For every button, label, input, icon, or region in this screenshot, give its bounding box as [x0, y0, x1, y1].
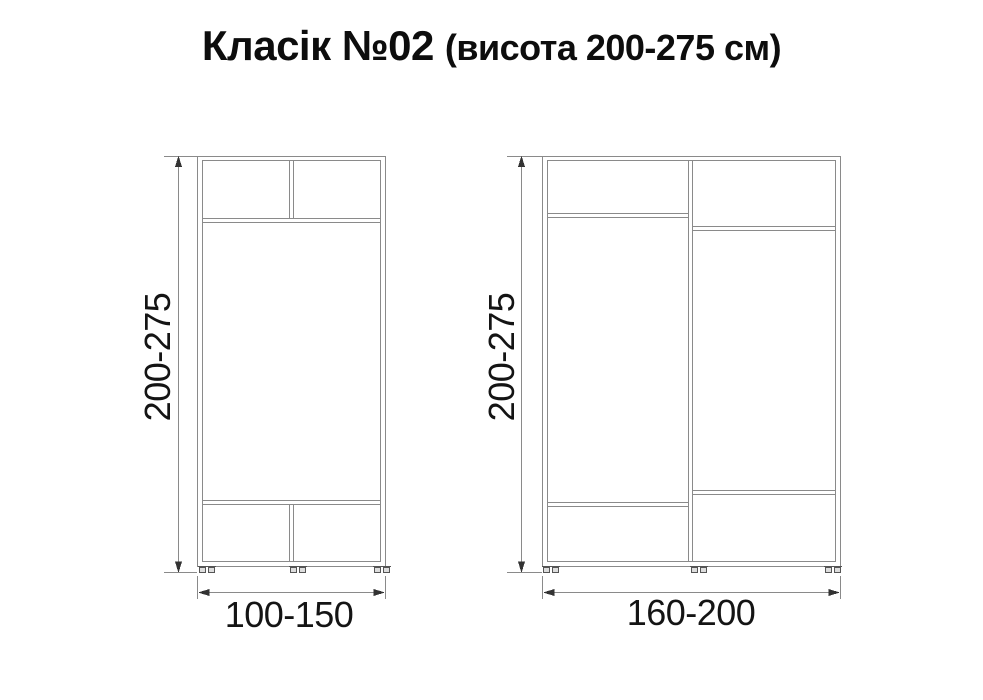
arrow-left-icon [543, 589, 555, 596]
arrow-up-icon [518, 156, 525, 168]
cabinet-foot [198, 567, 216, 573]
arrow-down-icon [518, 562, 525, 574]
wardrobe-dimension-diagram-page: Класік №02(висота 200-275 см) [0, 0, 983, 700]
left-cabinet-height-label: 200-275 [138, 297, 178, 417]
arrow-down-icon [175, 562, 182, 574]
left-cabinet-feet [198, 567, 391, 573]
cabinet-foot [690, 567, 708, 573]
left-cabinet-width-label: 100-150 [189, 595, 389, 635]
cabinet-foot [824, 567, 842, 573]
technical-drawing-area: 200-275 100-150 200-275 160-200 [0, 0, 983, 700]
arrow-right-icon [829, 589, 841, 596]
cabinet-foot [373, 567, 391, 573]
right-cabinet-width-label: 160-200 [591, 593, 791, 633]
right-cabinet-drawing [542, 157, 842, 573]
left-cabinet-drawing [198, 157, 392, 573]
right-cabinet-height-label: 200-275 [482, 297, 522, 417]
cabinet-foot [542, 567, 560, 573]
cabinet-foot [289, 567, 307, 573]
arrow-up-icon [175, 156, 182, 168]
right-cabinet-feet [542, 567, 842, 573]
